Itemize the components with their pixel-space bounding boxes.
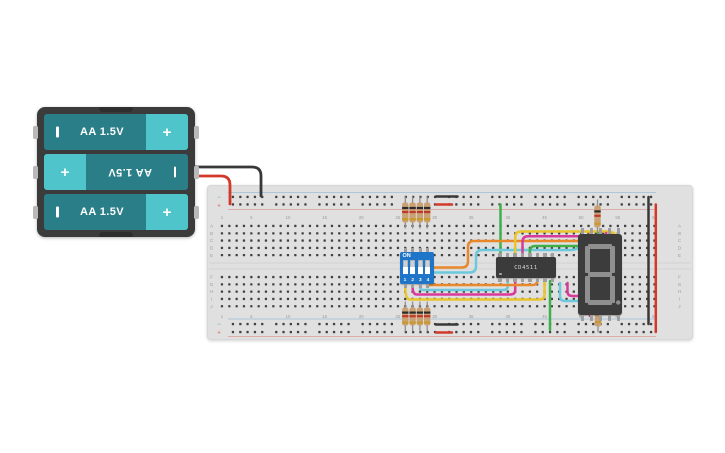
- dip-on-label: ON: [403, 253, 411, 259]
- plus-terminal: +: [146, 114, 188, 150]
- resistor[interactable]: [409, 302, 415, 331]
- resistor[interactable]: [424, 197, 430, 228]
- dip-pins-top: [404, 248, 430, 252]
- segment-f: [585, 246, 590, 273]
- dip-slider-4[interactable]: [425, 260, 430, 274]
- battery-terminal-nub: [194, 126, 199, 139]
- battery-cell-1[interactable]: AA 1.5V +: [44, 114, 188, 150]
- segment-b: [610, 246, 615, 273]
- resistor[interactable]: [402, 197, 408, 228]
- dip-slider-1[interactable]: [403, 260, 408, 274]
- battery-cell-label: AA 1.5V: [86, 154, 174, 190]
- dip-number: 1: [403, 278, 408, 283]
- battery-cell-label: AA 1.5V: [58, 114, 146, 150]
- ic-pins-top: [498, 253, 554, 257]
- ic-label: CD4511: [514, 265, 537, 271]
- resistor[interactable]: [417, 302, 423, 331]
- dip-slider-3[interactable]: [418, 260, 423, 274]
- dip-knob[interactable]: [410, 267, 415, 274]
- circuit-canvas: 1155101015152020252530303535404045455050…: [0, 0, 725, 453]
- dip-number: 4: [425, 278, 430, 283]
- resistor[interactable]: [424, 302, 430, 331]
- battery-frame-tab: [99, 232, 133, 237]
- dip-number: 2: [410, 278, 415, 283]
- ic-cd4511[interactable]: CD4511: [496, 257, 556, 278]
- display-pins-bottom: [581, 315, 620, 321]
- dip-pins-bottom: [404, 284, 430, 288]
- segment-g: [588, 272, 612, 277]
- plus-terminal: +: [44, 154, 86, 190]
- battery-terminal-nub: [33, 126, 38, 139]
- resistor[interactable]: [402, 302, 408, 331]
- battery-cell-label: AA 1.5V: [58, 194, 146, 230]
- dip-knob[interactable]: [418, 267, 423, 274]
- decimal-point: [616, 300, 620, 304]
- segment-a: [588, 244, 612, 249]
- dip-number: 3: [418, 278, 423, 283]
- resistor[interactable]: [417, 197, 423, 228]
- segment-c: [610, 276, 615, 303]
- dip-slider-2[interactable]: [410, 260, 415, 274]
- dip-switch[interactable]: ON 1 2 3 4: [400, 252, 434, 284]
- battery-terminal-nub: [194, 206, 199, 219]
- battery-cell-3[interactable]: AA 1.5V +: [44, 194, 188, 230]
- display-segments: [578, 234, 622, 315]
- dip-knob[interactable]: [425, 267, 430, 274]
- battery-cell-2[interactable]: AA 1.5V +: [44, 154, 188, 190]
- dip-knob[interactable]: [403, 267, 408, 274]
- ic-pin1-marker: [499, 273, 502, 276]
- battery-terminal-nub: [33, 166, 38, 179]
- segment-d: [588, 300, 612, 305]
- ic-pins-bottom: [498, 278, 554, 282]
- battery-pack[interactable]: AA 1.5V + AA 1.5V + AA 1.5V +: [37, 107, 195, 237]
- battery-terminal-nub: [33, 206, 38, 219]
- segment-e: [585, 276, 590, 303]
- battery-frame-tab: [99, 107, 133, 112]
- resistor[interactable]: [409, 197, 415, 228]
- battery-terminal-nub: [194, 166, 199, 179]
- plus-terminal: +: [146, 194, 188, 230]
- seven-segment-display[interactable]: [578, 234, 622, 315]
